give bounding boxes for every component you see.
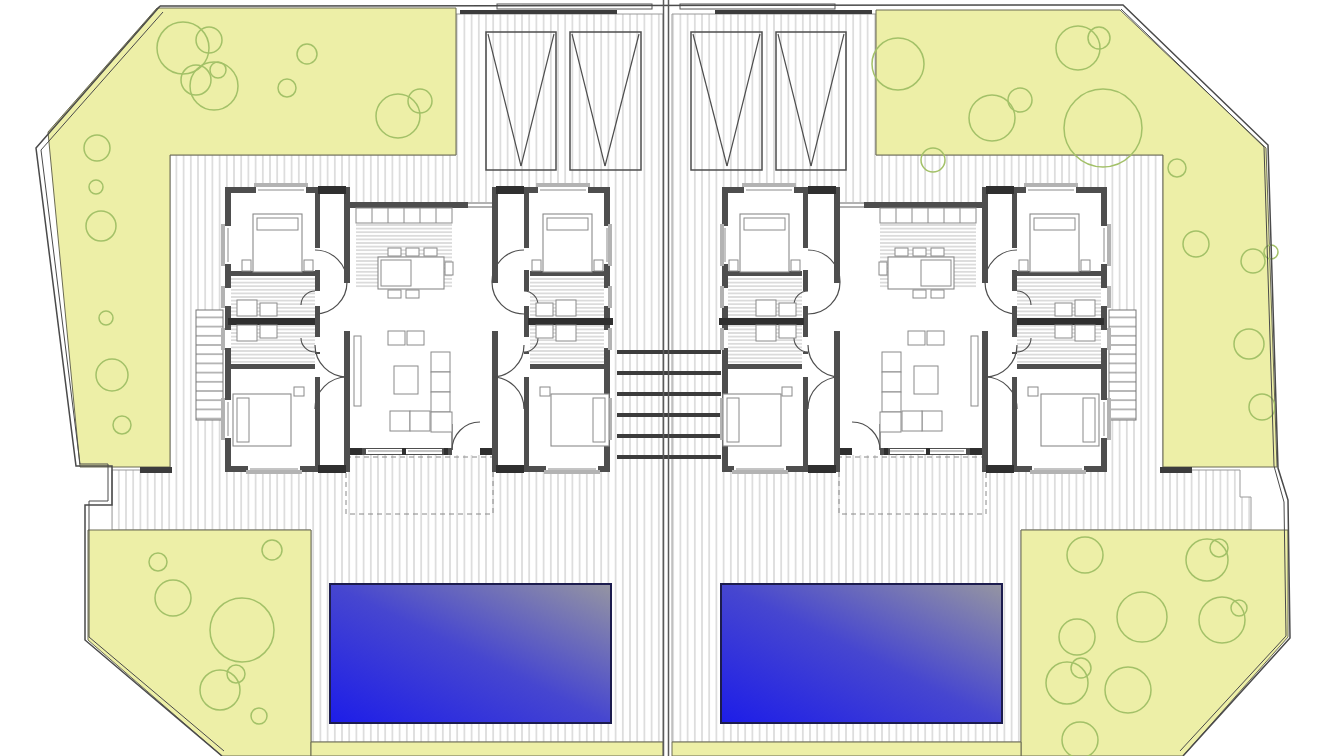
media-bench [354, 336, 361, 406]
door-opening [982, 283, 988, 331]
window-sill [720, 286, 724, 308]
pool-right-water [721, 584, 1002, 723]
bathroom-fixture [260, 325, 277, 338]
nightstand [594, 260, 603, 271]
wall-accent [318, 465, 346, 473]
coffee-table [914, 366, 938, 394]
door-opening [803, 337, 808, 352]
bathroom-divider-wall [228, 318, 315, 325]
window-sill [544, 470, 600, 474]
partition-wall [1017, 364, 1107, 369]
chair [879, 262, 887, 275]
exterior-stairs [1109, 310, 1136, 420]
nightstand [540, 387, 550, 396]
bathroom-fixture [237, 325, 257, 341]
window-sill [608, 224, 612, 266]
nightstand [791, 260, 800, 271]
chair [895, 248, 908, 256]
bed-pillow [727, 398, 739, 442]
wall-accent [496, 465, 524, 473]
garden-wall-step [1160, 467, 1192, 473]
wall-accent [808, 186, 836, 194]
door-opening [803, 354, 808, 377]
chair [913, 290, 926, 298]
sofa-seat [922, 411, 942, 431]
door-opening [315, 291, 320, 306]
window-sill [1030, 470, 1086, 474]
door-opening [524, 291, 529, 306]
door-jamb [480, 448, 492, 455]
door-jamb [970, 448, 982, 455]
door-opening [1012, 248, 1017, 270]
bathroom-fixture [1055, 325, 1072, 338]
window-sill [246, 470, 302, 474]
boundary-wall [715, 10, 872, 14]
window-sill [1107, 224, 1111, 266]
garden-bottom-strip-right [672, 742, 1021, 756]
window-sill [221, 286, 225, 308]
exterior-stairs [196, 310, 223, 420]
nightstand [532, 260, 541, 271]
entrance-opening [852, 448, 880, 455]
window-sill [221, 328, 225, 350]
sofa-corner [431, 412, 452, 432]
bathroom-fixture [1075, 300, 1095, 316]
bathroom-fixture [779, 325, 796, 338]
window-opening [1101, 288, 1107, 306]
window-sill [1107, 398, 1111, 440]
sofa-seat [902, 411, 922, 431]
bathroom-fixture [756, 300, 776, 316]
partition-wall [225, 364, 315, 369]
sofa-seat [431, 352, 450, 372]
window-opening [225, 330, 231, 348]
sofa-seat [390, 411, 410, 431]
window-sill [1107, 286, 1111, 308]
bed-pillow [257, 218, 298, 230]
window-sill [1024, 183, 1078, 187]
nightstand [782, 387, 792, 396]
door-opening [344, 283, 350, 331]
bathroom-divider-wall [719, 318, 804, 325]
bed-pillow [1034, 218, 1075, 230]
bathroom-fixture [1055, 303, 1072, 316]
window-sill [608, 328, 612, 350]
garden-bottom-strip-left [311, 742, 663, 756]
door-opening [524, 248, 529, 270]
partition-wall [524, 187, 529, 472]
sofa-seat [431, 392, 450, 412]
bed-pillow [237, 398, 249, 442]
pool-left-water [330, 584, 611, 723]
chair [406, 290, 419, 298]
villa-left-floorplan [221, 183, 613, 474]
partition-wall [315, 187, 320, 472]
entrance-opening [452, 448, 480, 455]
bathroom-divider-wall [528, 318, 613, 325]
nightstand [1019, 260, 1028, 271]
window-sill [732, 470, 788, 474]
bed-pillow [547, 218, 588, 230]
chair [445, 262, 453, 275]
bed-pillow [744, 218, 785, 230]
bathroom-fixture [536, 303, 553, 316]
site-plan-page [0, 0, 1319, 756]
door-opening [524, 354, 529, 377]
window-sill [221, 398, 225, 440]
window-sill [1107, 328, 1111, 350]
chair [406, 248, 419, 256]
coffee-table [394, 366, 418, 394]
wall [864, 202, 988, 208]
chair [424, 248, 437, 256]
door-opening [803, 248, 808, 270]
window-sill [608, 286, 612, 308]
door-jamb [350, 448, 362, 455]
bathroom-divider-wall [1017, 318, 1104, 325]
bed-pillow [593, 398, 605, 442]
bathroom-fixture [260, 303, 277, 316]
partition-wall [530, 364, 610, 369]
sofa-corner [880, 412, 901, 432]
media-bench [971, 336, 978, 406]
window-sill [720, 224, 724, 266]
window-sill [742, 183, 796, 187]
door-jamb [840, 448, 852, 455]
armchair [407, 331, 424, 345]
wall [344, 202, 468, 208]
bathroom-fixture [779, 303, 796, 316]
dining-table [921, 260, 951, 286]
bathroom-fixture [237, 300, 257, 316]
chair [931, 248, 944, 256]
sofa-seat [882, 372, 901, 392]
bathroom-fixture [756, 325, 776, 341]
window-mullion [402, 448, 406, 455]
chair [388, 248, 401, 256]
sofa-seat [882, 392, 901, 412]
window-sill [536, 183, 590, 187]
wall-accent [808, 465, 836, 473]
bathroom-fixture [1075, 325, 1095, 341]
garden-wall-step [140, 467, 172, 473]
door-opening [1012, 291, 1017, 306]
chair [913, 248, 926, 256]
door-opening [803, 291, 808, 306]
window-mullion [926, 448, 930, 455]
window-mullion [444, 448, 448, 455]
villa-right-floorplan [719, 183, 1111, 474]
window-opening [225, 288, 231, 306]
armchair [927, 331, 944, 345]
armchair [908, 331, 925, 345]
nightstand [294, 387, 304, 396]
nightstand [1081, 260, 1090, 271]
nightstand [242, 260, 251, 271]
chair [388, 290, 401, 298]
dining-table [381, 260, 411, 286]
wall-accent [318, 186, 346, 194]
chair [931, 290, 944, 298]
bathroom-fixture [536, 325, 553, 338]
bed-pillow [1083, 398, 1095, 442]
floor-plan-canvas [0, 0, 1319, 756]
wall-accent [496, 186, 524, 194]
sofa-seat [410, 411, 430, 431]
boundary-wall [460, 10, 617, 14]
wall-accent [986, 186, 1014, 194]
door-opening [524, 337, 529, 352]
window-sill [254, 183, 308, 187]
partition-wall [1012, 187, 1017, 472]
street-edge-marker [497, 4, 652, 9]
partition-wall [722, 364, 802, 369]
window-sill [221, 224, 225, 266]
wall-accent [986, 465, 1014, 473]
bathroom-fixture [556, 300, 576, 316]
window-mullion [884, 448, 888, 455]
nightstand [304, 260, 313, 271]
partition-wall [803, 187, 808, 472]
sofa-seat [882, 352, 901, 372]
armchair [388, 331, 405, 345]
door-opening [315, 248, 320, 270]
window-opening [1101, 330, 1107, 348]
bathroom-fixture [556, 325, 576, 341]
window-sill [720, 328, 724, 350]
nightstand [1028, 387, 1038, 396]
nightstand [729, 260, 738, 271]
sofa-seat [431, 372, 450, 392]
